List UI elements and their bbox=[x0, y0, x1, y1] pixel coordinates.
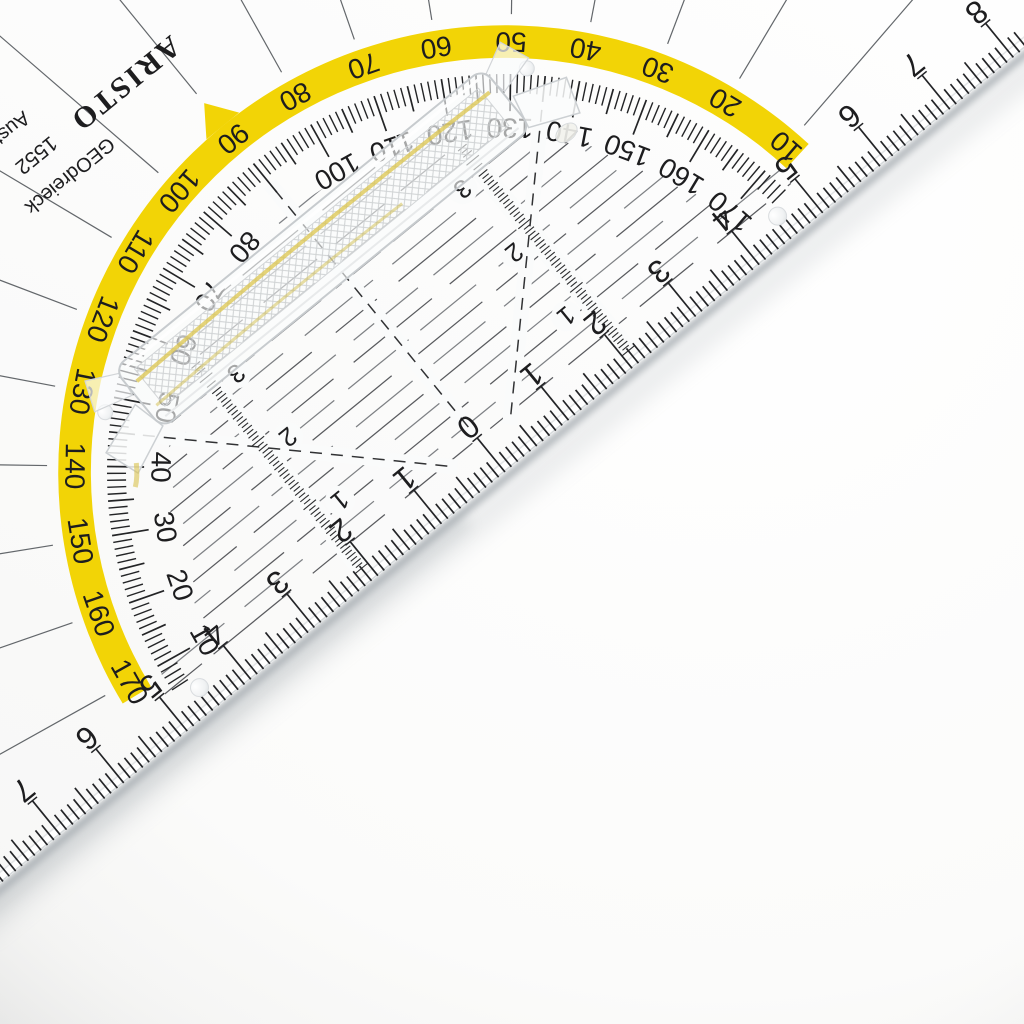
vignette-overlay bbox=[0, 0, 1024, 1024]
geo-triangle-photo: 123123 170160150140130120110100807060504… bbox=[0, 0, 1024, 1024]
photo-stage: 123123 170160150140130120110100807060504… bbox=[0, 0, 1024, 1024]
